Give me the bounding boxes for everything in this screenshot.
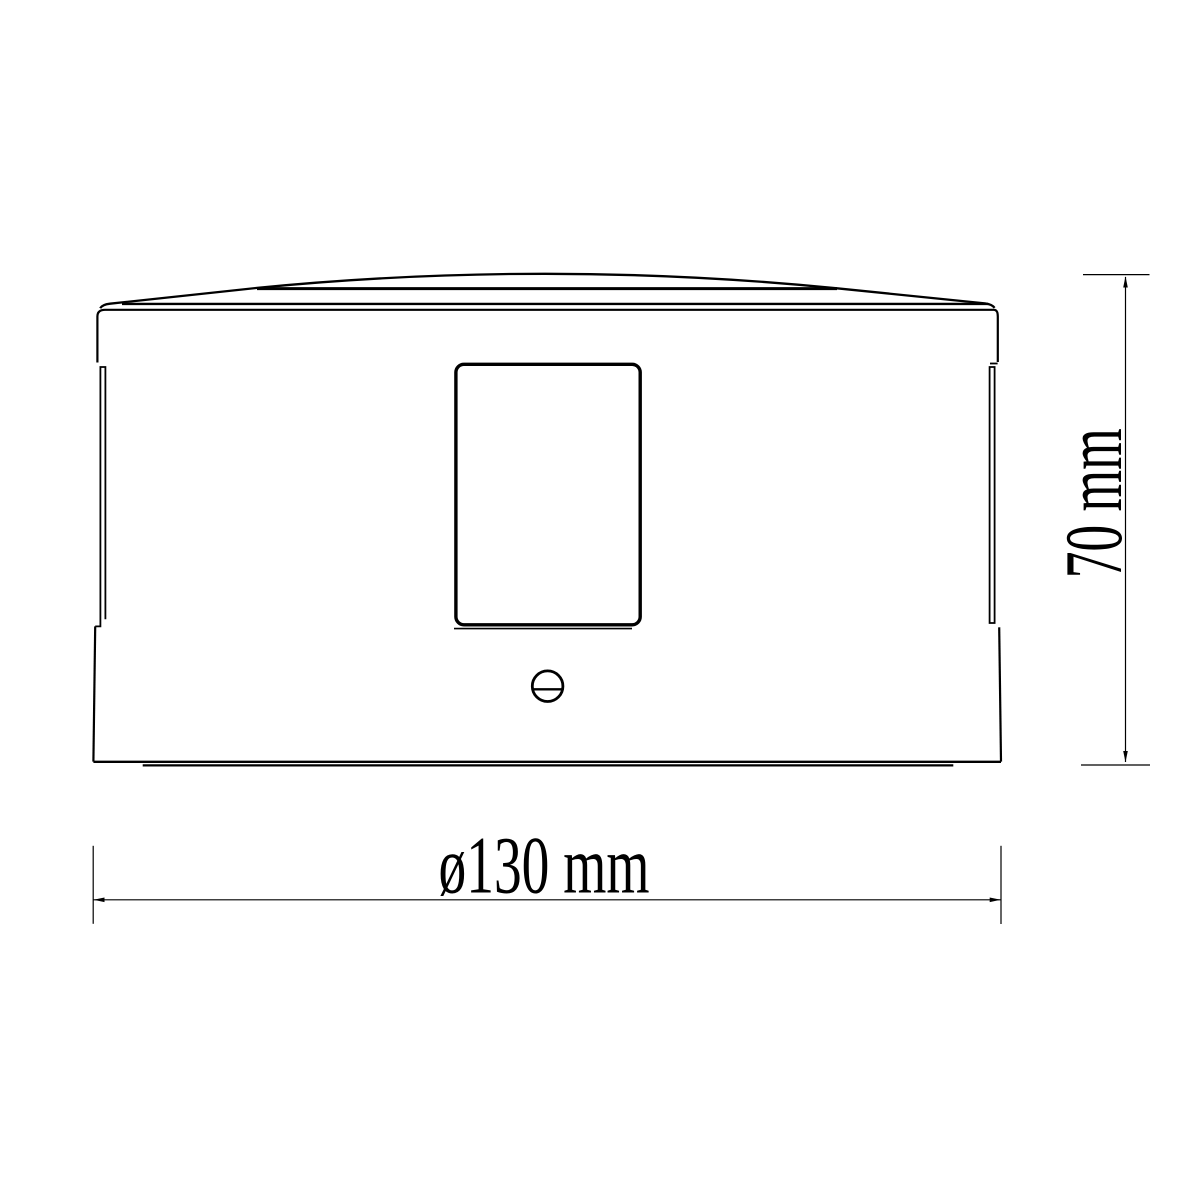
svg-text:ø130 mm: ø130 mm xyxy=(439,819,650,910)
svg-text:70 mm: 70 mm xyxy=(1048,428,1139,578)
